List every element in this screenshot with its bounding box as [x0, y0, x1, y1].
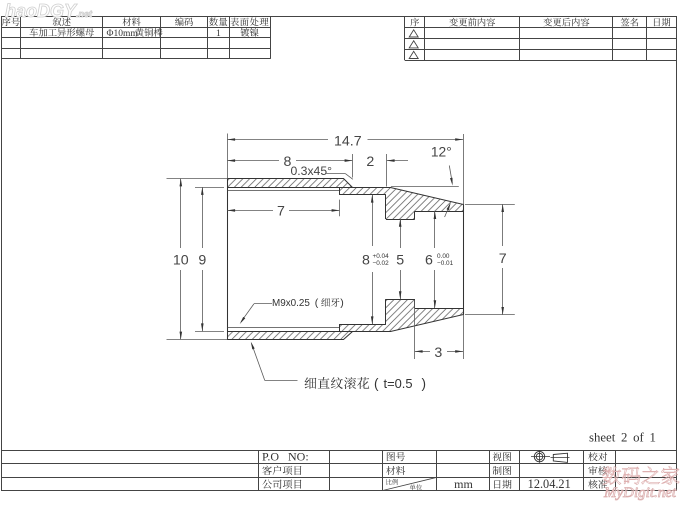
svg-text:M9x0.25: M9x0.25: [272, 298, 310, 309]
svg-text:8: 8: [362, 252, 370, 268]
svg-text:12.04.21: 12.04.21: [528, 477, 571, 491]
svg-text:0.00: 0.00: [437, 253, 450, 260]
svg-text:1: 1: [216, 29, 221, 39]
svg-text:7: 7: [499, 251, 507, 267]
svg-text:mm: mm: [454, 477, 473, 491]
svg-text:(: (: [315, 297, 319, 309]
svg-text:P.O NO:: P.O NO:: [262, 449, 309, 463]
svg-text:−0.01: −0.01: [437, 260, 454, 267]
svg-text:sheet 2 of 1: sheet 2 of 1: [589, 431, 656, 445]
svg-text:MyDigit.net: MyDigit.net: [603, 485, 677, 501]
svg-text:6: 6: [425, 252, 433, 268]
svg-text:(: (: [374, 376, 379, 391]
svg-text:Φ10mm: Φ10mm: [107, 29, 139, 39]
svg-text:12°: 12°: [431, 144, 452, 159]
svg-text:t=0.5: t=0.5: [384, 376, 413, 391]
svg-text:): ): [340, 297, 344, 309]
svg-text:14.7: 14.7: [334, 133, 362, 149]
svg-text:7: 7: [277, 204, 285, 220]
svg-text:haoDGY.net: haoDGY.net: [5, 1, 93, 21]
svg-text:0.3x45°: 0.3x45°: [291, 164, 333, 178]
svg-text:9: 9: [198, 252, 206, 268]
svg-text:5: 5: [396, 252, 404, 268]
svg-text:10: 10: [173, 252, 189, 268]
svg-text:2: 2: [366, 154, 374, 170]
svg-text:+0.04: +0.04: [373, 253, 390, 260]
svg-text:−0.02: −0.02: [373, 260, 390, 267]
svg-text:3: 3: [434, 345, 442, 361]
svg-text:): ): [422, 376, 427, 391]
